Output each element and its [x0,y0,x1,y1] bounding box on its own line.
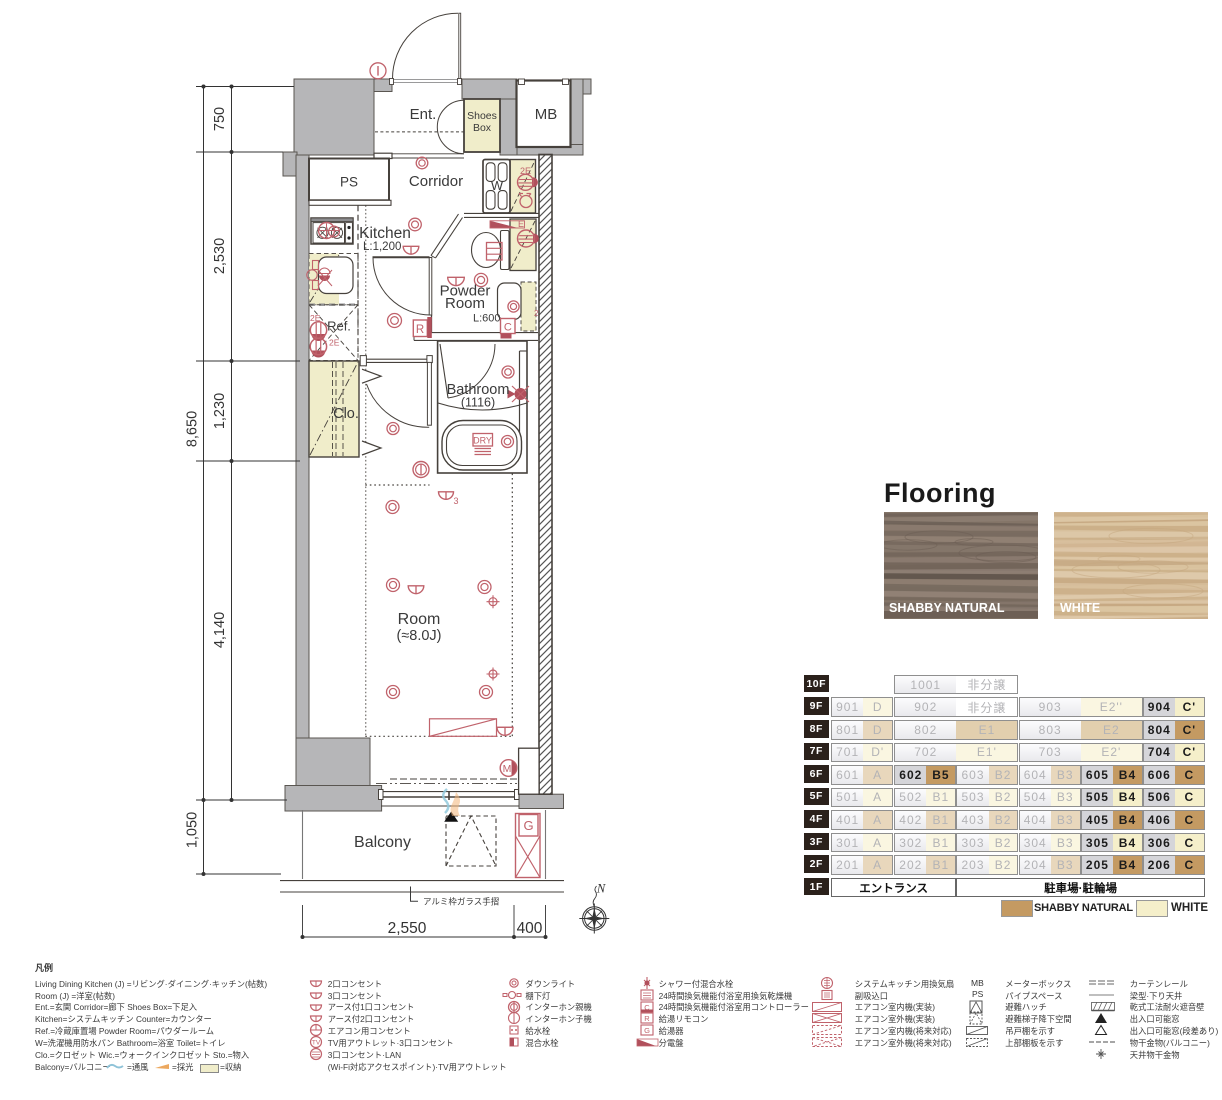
svg-text:(1116): (1116) [461,396,495,410]
svg-text:Balcony: Balcony [354,834,411,851]
svg-text:MB: MB [535,106,558,123]
svg-text:2: 2 [534,309,539,318]
svg-text:G: G [523,818,533,833]
svg-text:Shoes: Shoes [467,110,497,122]
svg-text:8,650: 8,650 [185,411,201,447]
svg-text:N: N [596,882,606,896]
svg-text:750: 750 [212,107,228,131]
svg-text:PS: PS [340,175,358,190]
svg-text:3: 3 [454,496,459,506]
svg-text:2,550: 2,550 [388,920,427,937]
svg-text:4,140: 4,140 [212,612,228,648]
svg-text:2,530: 2,530 [212,238,228,274]
svg-text:Box: Box [473,122,492,134]
svg-text:W: W [491,178,504,193]
svg-text:L:1,200: L:1,200 [363,241,401,253]
svg-text:M: M [503,763,512,775]
svg-text:R: R [416,324,424,336]
svg-text:Room: Room [445,295,485,312]
svg-text:2E: 2E [520,166,531,176]
svg-text:アルミ枠ガラス手摺: アルミ枠ガラス手摺 [423,897,499,907]
svg-text:DRY: DRY [473,436,492,446]
svg-text:Kitchen: Kitchen [359,225,411,242]
svg-text:Corridor: Corridor [409,173,463,190]
svg-text:(≈8.0J): (≈8.0J) [396,628,441,644]
svg-text:2E: 2E [329,338,340,348]
svg-text:Room: Room [398,611,441,628]
svg-text:E: E [518,219,524,229]
svg-text:Ref.: Ref. [327,319,351,334]
svg-text:L:600: L:600 [473,313,501,325]
svg-text:C: C [504,322,512,334]
svg-text:2E: 2E [310,313,321,323]
svg-text:Ent.: Ent. [410,106,437,123]
svg-text:400: 400 [517,920,543,937]
svg-text:1,050: 1,050 [185,812,201,848]
svg-text:1,230: 1,230 [212,393,228,429]
svg-text:Clo.: Clo. [333,406,359,422]
